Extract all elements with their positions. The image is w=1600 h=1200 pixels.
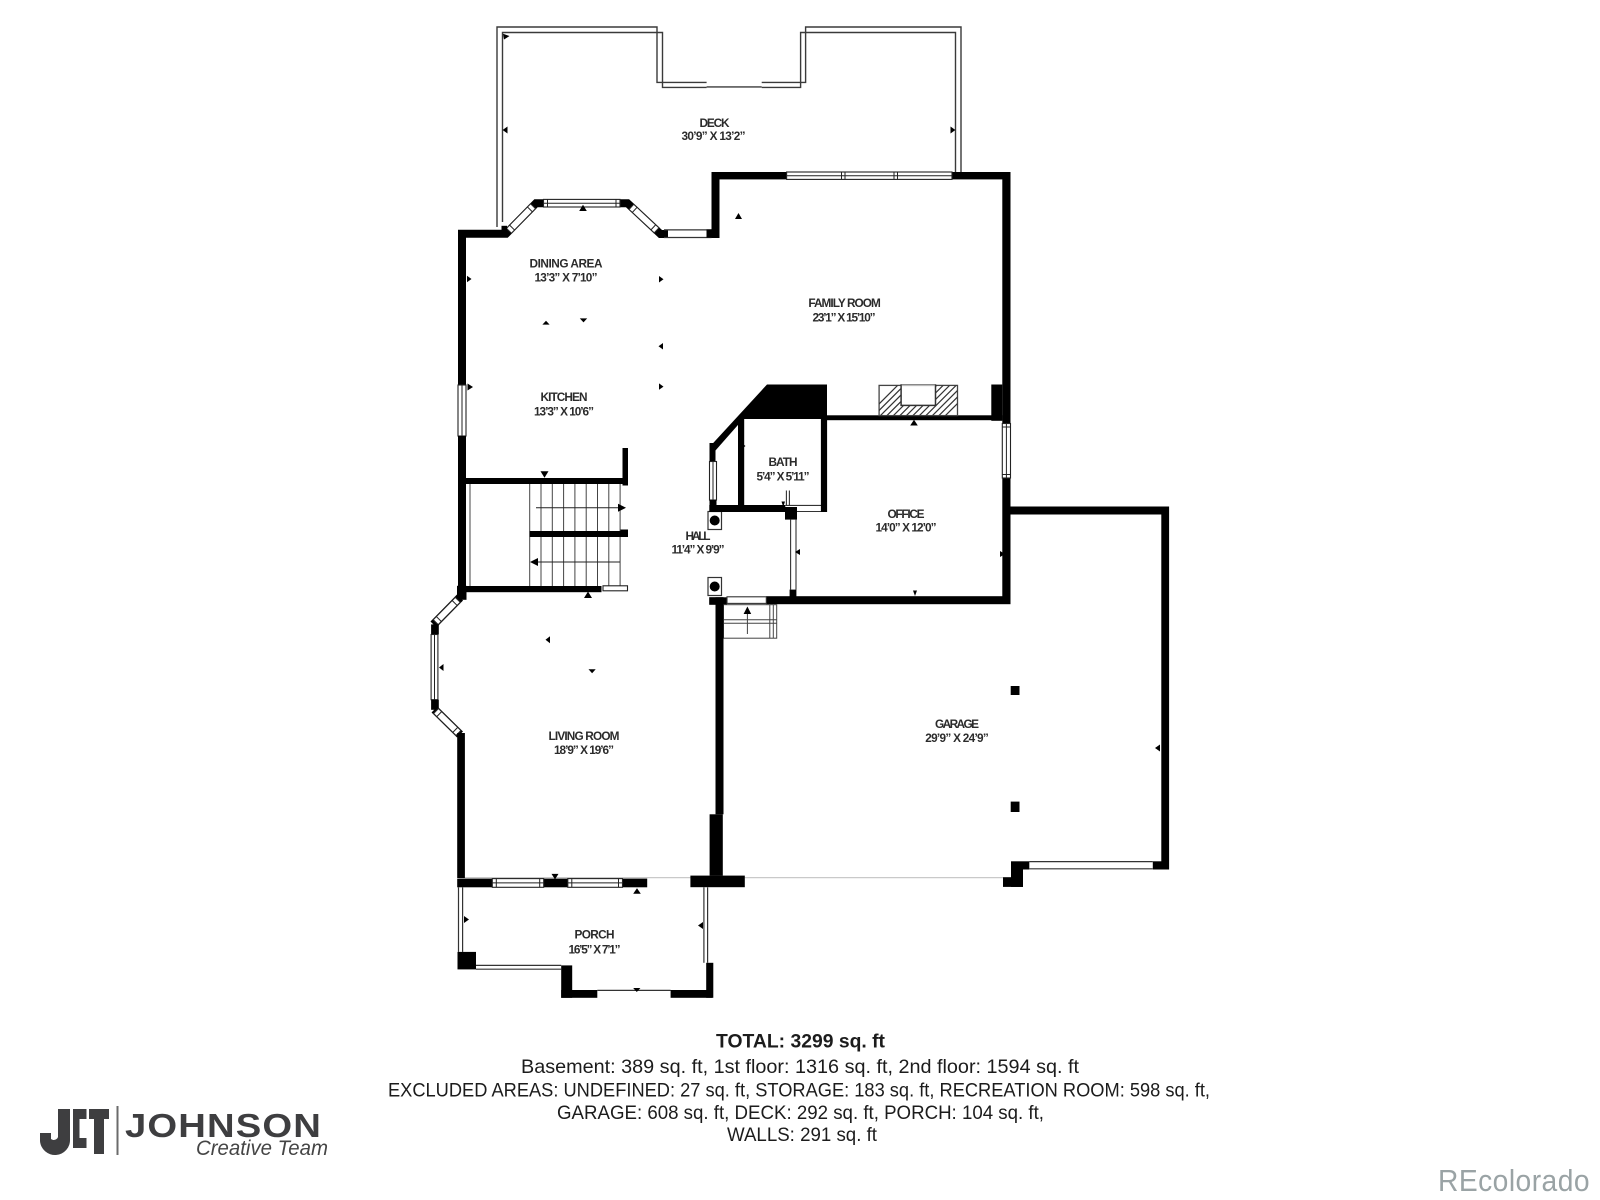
svg-text:PORCH: PORCH (575, 928, 615, 942)
svg-text:11’4” X 9’9”: 11’4” X 9’9” (672, 543, 725, 557)
svg-text:GARAGE: 608 sq. ft, DECK: 292: GARAGE: 608 sq. ft, DECK: 292 sq. ft, PO… (557, 1102, 1044, 1124)
svg-text:GARAGE: GARAGE (935, 717, 979, 731)
svg-text:DECK: DECK (700, 116, 730, 130)
svg-text:KITCHEN: KITCHEN (541, 390, 588, 404)
svg-text:18’9” X 19’6”: 18’9” X 19’6” (554, 743, 614, 757)
svg-text:23’1” X 15’10”: 23’1” X 15’10” (813, 311, 876, 325)
svg-text:13’3” X 10’6”: 13’3” X 10’6” (534, 404, 594, 418)
svg-text:REcolorado: REcolorado (1438, 1163, 1590, 1198)
svg-text:Basement: 389 sq. ft, 1st floo: Basement: 389 sq. ft, 1st floor: 1316 sq… (521, 1056, 1080, 1078)
svg-text:EXCLUDED AREAS: UNDEFINED: 27: EXCLUDED AREAS: UNDEFINED: 27 sq. ft, ST… (388, 1080, 1210, 1102)
svg-text:HALL: HALL (686, 529, 711, 543)
svg-text:Creative Team: Creative Team (196, 1137, 328, 1160)
svg-text:LIVING ROOM: LIVING ROOM (549, 729, 620, 743)
svg-text:13’3” X 7’10”: 13’3” X 7’10” (535, 271, 598, 285)
svg-text:WALLS: 291 sq. ft: WALLS: 291 sq. ft (727, 1124, 878, 1146)
svg-text:29’9” X 24’9”: 29’9” X 24’9” (925, 731, 989, 745)
svg-text:FAMILY ROOM: FAMILY ROOM (808, 296, 881, 310)
svg-text:30’9” X 13’2”: 30’9” X 13’2” (682, 129, 746, 143)
svg-text:5’4” X 5’11”: 5’4” X 5’11” (757, 469, 810, 483)
svg-text:14’0” X 12’0”: 14’0” X 12’0” (876, 521, 937, 535)
svg-text:TOTAL: 3299 sq. ft: TOTAL: 3299 sq. ft (716, 1031, 885, 1053)
svg-text:16’5” X 7’1”: 16’5” X 7’1” (569, 942, 621, 956)
svg-text:DINING AREA: DINING AREA (530, 256, 603, 270)
svg-text:OFFICE: OFFICE (888, 507, 925, 521)
svg-text:BATH: BATH (769, 455, 798, 469)
